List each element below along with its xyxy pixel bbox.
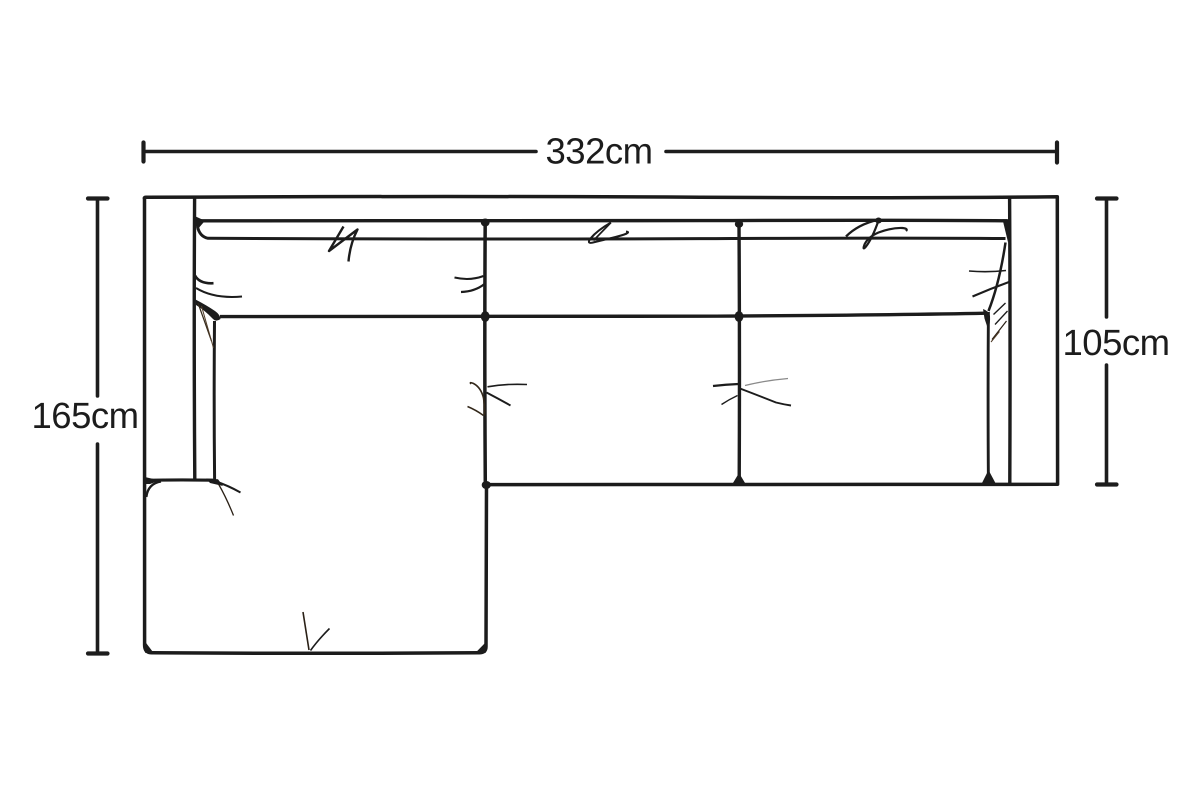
svg-text:105cm: 105cm bbox=[1062, 322, 1169, 363]
svg-text:165cm: 165cm bbox=[31, 395, 138, 436]
svg-text:332cm: 332cm bbox=[545, 130, 652, 171]
